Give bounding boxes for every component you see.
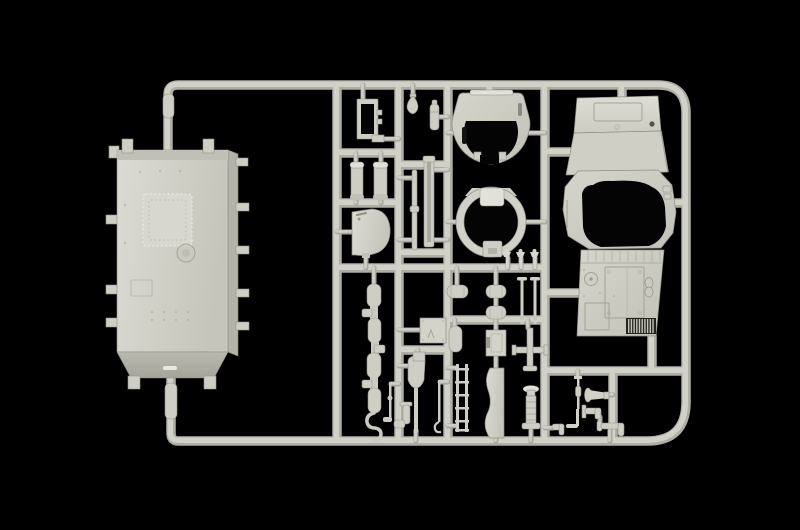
sprue-photo [0, 0, 800, 530]
photo-stage [0, 0, 800, 530]
vignette [0, 0, 800, 530]
